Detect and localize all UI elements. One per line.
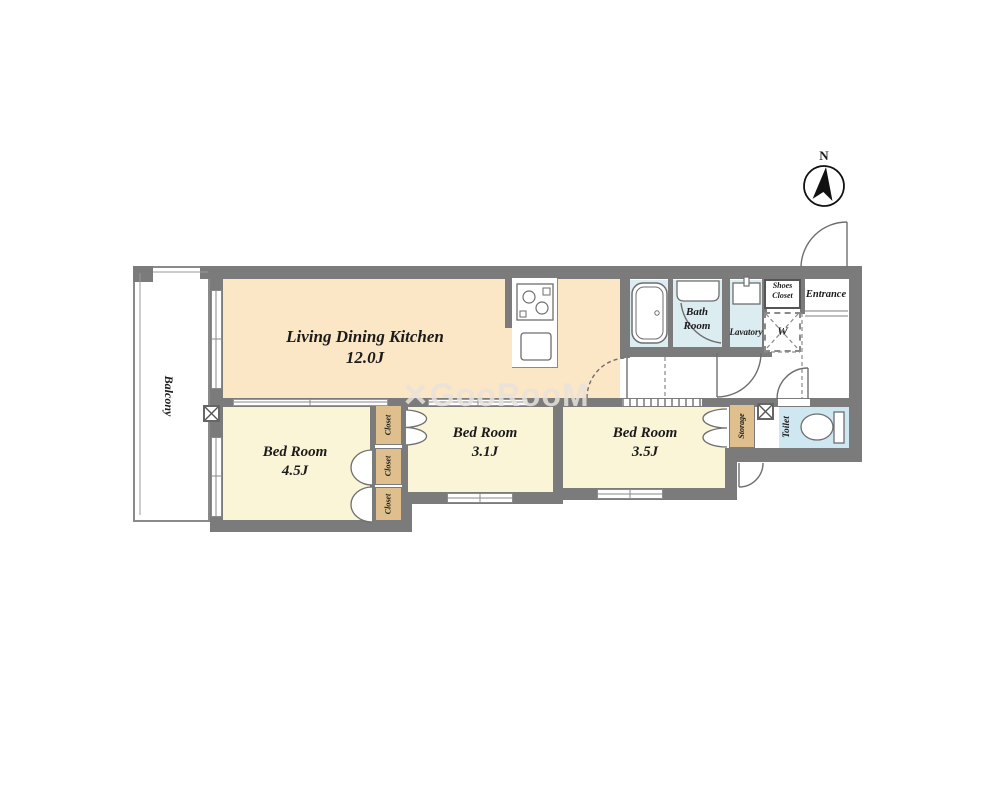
bedroom-45-name: Bed Room <box>235 443 355 462</box>
wall-lavatory-left <box>722 278 730 355</box>
toilet-label: Toilet <box>782 405 794 449</box>
ldk-size: 12.0J <box>250 347 480 368</box>
wall-bottom-right <box>725 448 862 462</box>
sliding-door-bed35 <box>622 399 702 406</box>
bedroom-31-label: Bed Room 3.1J <box>425 424 545 462</box>
closet-3-label: Closet <box>384 484 394 525</box>
window-bed35 <box>597 489 663 499</box>
bath-label: Bath Room <box>672 306 722 334</box>
entrance-label: Entrance <box>801 288 851 301</box>
sliding-partition-bed45 <box>233 399 388 406</box>
wall-bath-bottom <box>620 347 772 357</box>
window-bed31 <box>447 493 513 503</box>
storage-label: Storage <box>737 404 747 448</box>
room-bathtub <box>630 280 668 347</box>
lavatory-label: Lavatory <box>727 327 765 338</box>
wall-bed45-bottom <box>210 520 412 532</box>
balcony-label: Balcony <box>162 361 176 431</box>
ldk-name: Living Dining Kitchen <box>250 326 480 347</box>
kitchen-counter <box>512 278 558 368</box>
pipe-space-right <box>757 403 774 420</box>
shoes-closet-label: Shoes Closet <box>764 281 801 301</box>
bedroom-31-size: 3.1J <box>425 443 545 462</box>
bedroom-35-name: Bed Room <box>585 424 705 443</box>
bedroom-35-size: 3.5J <box>585 443 705 462</box>
closet-1-label: Closet <box>384 405 394 446</box>
closet-2-label: Closet <box>384 446 394 487</box>
watermark: ✕GooRooM <box>402 376 622 414</box>
floor-plan: Balcony Shoes Closet W <box>0 0 999 801</box>
window-bed45 <box>211 437 222 517</box>
ldk-label: Living Dining Kitchen 12.0J <box>250 326 480 369</box>
washer-label: W <box>764 324 801 339</box>
wall-bath-left <box>620 278 630 358</box>
north-compass-icon <box>802 164 846 208</box>
compass-north-label: N <box>812 148 836 164</box>
window-ldk <box>211 290 222 389</box>
bedroom-45-size: 4.5J <box>235 462 355 481</box>
bedroom-35-label: Bed Room 3.5J <box>585 424 705 462</box>
bedroom-45-label: Bed Room 4.5J <box>235 443 355 481</box>
bedroom-31-name: Bed Room <box>425 424 545 443</box>
pipe-space-left <box>203 405 220 422</box>
balcony-corner-pillar <box>133 266 153 282</box>
